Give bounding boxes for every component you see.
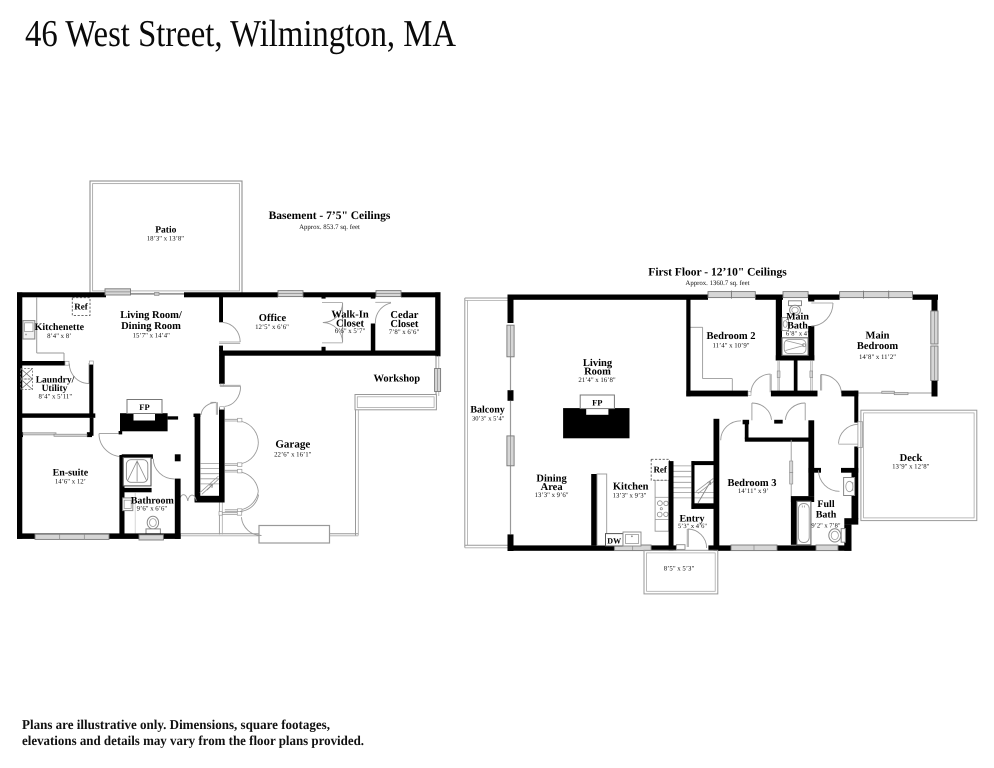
svg-text:12’5" x 6’6": 12’5" x 6’6"	[255, 324, 289, 331]
svg-text:Basement - 7’5" Ceilings: Basement - 7’5" Ceilings	[269, 210, 391, 222]
svg-text:18’3" x 13’8": 18’3" x 13’8"	[147, 236, 184, 243]
svg-text:Utility: Utility	[42, 384, 68, 394]
svg-text:FP: FP	[139, 402, 149, 412]
svg-text:13’3" x 9’6": 13’3" x 9’6"	[535, 492, 569, 499]
svg-text:En-suite: En-suite	[53, 468, 89, 479]
svg-text:14’8" x 11’2": 14’8" x 11’2"	[859, 354, 896, 361]
svg-text:9’6" x 6’6": 9’6" x 6’6"	[137, 506, 168, 513]
svg-text:Plans are illustrative only. D: Plans are illustrative only. Dimensions,…	[22, 717, 330, 732]
svg-text:Patio: Patio	[155, 226, 176, 236]
svg-text:First Floor - 12’10" Ceilings: First Floor - 12’10" Ceilings	[648, 267, 787, 279]
svg-text:22’6" x 16’1": 22’6" x 16’1"	[274, 452, 311, 459]
svg-text:elevations and details may var: elevations and details may vary from the…	[22, 733, 364, 748]
svg-text:Office: Office	[259, 313, 287, 324]
svg-text:11’4" x 10’9": 11’4" x 10’9"	[712, 343, 749, 350]
svg-text:Living Room/: Living Room/	[120, 310, 183, 321]
svg-text:5’3" x 4’6": 5’3" x 4’6"	[678, 523, 707, 530]
svg-text:Balcony: Balcony	[470, 405, 504, 416]
svg-text:9’2" x 7’8": 9’2" x 7’8"	[811, 523, 840, 530]
svg-text:Garage: Garage	[275, 439, 310, 451]
svg-text:6’8" x 4’: 6’8" x 4’	[786, 330, 809, 337]
svg-text:Bedroom: Bedroom	[857, 341, 898, 352]
svg-text:Ref: Ref	[74, 301, 88, 311]
svg-text:21’4" x 16’8": 21’4" x 16’8"	[578, 377, 615, 384]
svg-text:Room: Room	[584, 367, 611, 378]
svg-text:Bath: Bath	[816, 510, 837, 521]
svg-text:6’6" x 5’7": 6’6" x 5’7"	[335, 328, 366, 335]
svg-text:Kitchenette: Kitchenette	[35, 322, 85, 333]
svg-text:14’11" x 9’: 14’11" x 9’	[738, 488, 769, 495]
svg-text:Deck: Deck	[900, 453, 923, 464]
svg-text:Main: Main	[866, 331, 890, 342]
svg-text:Ref: Ref	[653, 465, 667, 475]
svg-text:8’5" x 5’3": 8’5" x 5’3"	[664, 566, 695, 573]
svg-text:Dining Room: Dining Room	[121, 321, 181, 332]
svg-text:8’4" x 8’: 8’4" x 8’	[47, 333, 71, 340]
svg-text:30’3" x 5’4": 30’3" x 5’4"	[472, 416, 505, 423]
svg-text:7’8" x 6’6": 7’8" x 6’6"	[389, 329, 420, 336]
svg-text:13’3" x 9’3": 13’3" x 9’3"	[613, 493, 647, 500]
svg-text:Workshop: Workshop	[373, 374, 420, 385]
svg-text:DW: DW	[607, 537, 621, 546]
svg-text:13’9" x 12’8": 13’9" x 12’8"	[892, 464, 929, 471]
svg-text:8’4" x 5’11": 8’4" x 5’11"	[38, 394, 72, 401]
svg-text:FP: FP	[592, 398, 602, 408]
svg-text:15’7" x 14’4": 15’7" x 14’4"	[133, 333, 170, 340]
svg-text:Kitchen: Kitchen	[613, 481, 649, 492]
svg-text:Bedroom 2: Bedroom 2	[706, 331, 755, 342]
svg-text:14’6" x 12’: 14’6" x 12’	[55, 479, 86, 486]
svg-text:Full: Full	[817, 499, 834, 510]
svg-text:46 West Street, Wilmington, MA: 46 West Street, Wilmington, MA	[25, 13, 456, 55]
svg-text:Approx. 1360.7 sq. feet: Approx. 1360.7 sq. feet	[685, 280, 749, 287]
svg-text:Approx. 853.7 sq. feet: Approx. 853.7 sq. feet	[299, 224, 360, 231]
